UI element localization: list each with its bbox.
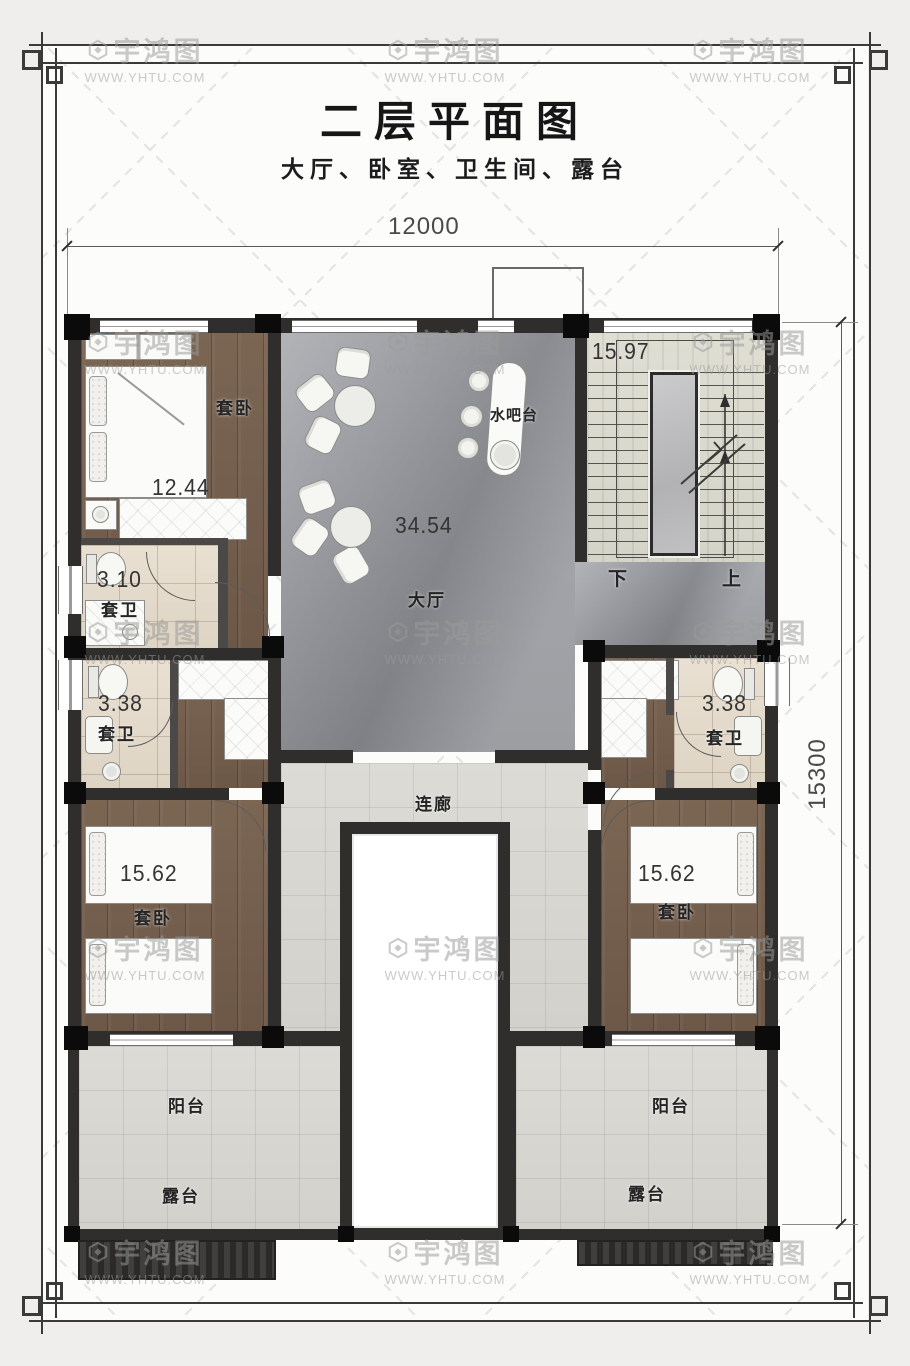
bar-stool <box>468 370 490 392</box>
area-label-suite-bedroom-tl: 12.44 <box>152 474 210 501</box>
area-label-suite-bath-left: 3.38 <box>98 690 143 717</box>
area-label-suite-bedroom-right: 15.62 <box>638 860 696 887</box>
dimension-width-label: 12000 <box>388 213 460 241</box>
wall-hall-bottom <box>495 750 595 763</box>
wall-stairs-left <box>575 332 587 562</box>
wardrobe-l-shape <box>178 660 270 700</box>
frame-line-inner <box>43 62 863 64</box>
water-bar-basin <box>490 440 520 470</box>
frame-line <box>29 44 881 46</box>
room-label-suite-bath-left: 套卫 <box>98 720 136 745</box>
shower-drain <box>730 764 749 783</box>
page-title: 二层平面图 <box>0 88 910 149</box>
room-label-water-bar: 水吧台 <box>490 404 538 425</box>
wall-partition <box>170 660 178 788</box>
balcony-sliding-door <box>110 1034 233 1046</box>
frame-corner-ornament <box>869 50 888 70</box>
wall-partition <box>666 658 674 715</box>
column <box>755 1026 780 1050</box>
column <box>262 1026 284 1048</box>
wall-right-suite-top <box>588 645 765 658</box>
wardrobe-l-shape <box>601 698 647 758</box>
room-label-suite-bedroom-left: 套卧 <box>134 904 172 929</box>
area-label-suite-bedroom-left: 15.62 <box>120 860 178 887</box>
dimension-height-label: 15300 <box>804 731 832 817</box>
window <box>58 660 83 710</box>
frame-corner-ornament <box>834 1282 851 1300</box>
wall-interior <box>588 658 601 770</box>
frame-corner-ornament <box>46 66 63 84</box>
stair-center-wall <box>650 372 698 556</box>
frame-line <box>29 1320 881 1322</box>
column <box>64 314 90 340</box>
balcony-sliding-door <box>612 1034 735 1046</box>
pillow <box>737 832 754 896</box>
column <box>64 782 86 804</box>
room-label-suite-bath-tl: 套卫 <box>101 596 139 621</box>
dimension-extension <box>782 322 858 323</box>
wall-terrace <box>341 1046 352 1240</box>
bar-stool <box>460 405 483 428</box>
area-label-stairs: 15.97 <box>592 338 650 365</box>
shower-drain <box>102 762 121 781</box>
room-label-suite-bedroom-tl: 套卧 <box>216 394 254 419</box>
frame-corner-ornament <box>22 50 41 70</box>
area-label-suite-bath-tl: 3.10 <box>97 566 142 593</box>
dresser <box>85 334 192 360</box>
wall-terrace <box>505 1229 778 1240</box>
shower-drain <box>122 624 138 640</box>
window <box>478 320 514 333</box>
bar-stool <box>457 437 479 459</box>
room-label-hall: 大厅 <box>408 586 446 611</box>
pillow <box>89 432 107 482</box>
column <box>255 314 281 333</box>
room-label-suite-bedroom-right: 套卧 <box>658 898 696 923</box>
pillow <box>89 944 106 1006</box>
floor-terrace-left <box>79 1046 341 1229</box>
wall-partition <box>81 538 228 545</box>
column <box>583 640 605 662</box>
column <box>262 782 284 804</box>
frame-line <box>41 32 43 1334</box>
awning-right <box>577 1240 773 1266</box>
column <box>64 636 86 658</box>
frame-corner-ornament <box>46 1282 63 1300</box>
window <box>58 566 83 614</box>
corridor-void-opening <box>340 822 510 1240</box>
frame-corner-ornament <box>22 1296 41 1316</box>
round-table <box>334 385 376 427</box>
dimension-extension <box>67 228 68 318</box>
wall-terrace <box>68 1229 352 1240</box>
frame-corner-ornament <box>834 66 851 84</box>
wall-partition <box>666 770 674 788</box>
lamp <box>92 506 109 523</box>
floor-plan-page: 二层平面图 大厅、卧室、卫生间、露台 12000 15300 <box>0 0 910 1366</box>
window <box>292 320 417 333</box>
frame-line-inner <box>55 48 57 1318</box>
wall-interior <box>81 648 281 660</box>
dimension-extension <box>778 228 779 318</box>
round-table <box>330 506 372 548</box>
pillow <box>89 376 107 426</box>
wardrobe-l-shape <box>224 698 270 760</box>
frame-line-inner <box>43 1302 863 1304</box>
frame-corner-ornament <box>869 1296 888 1316</box>
stairs-up-label: 上 <box>722 564 743 591</box>
column <box>503 1226 519 1242</box>
frame-line <box>869 32 871 1334</box>
window <box>604 320 752 333</box>
room-label-terrace-left: 露台 <box>162 1182 200 1207</box>
wardrobe <box>119 498 247 540</box>
window <box>764 658 790 706</box>
column <box>757 640 780 662</box>
wall-interior <box>268 318 281 576</box>
page-subtitle: 大厅、卧室、卫生间、露台 <box>0 150 910 184</box>
lounge-chair <box>334 346 372 380</box>
column <box>262 636 284 658</box>
column <box>583 782 605 804</box>
column <box>338 1226 354 1242</box>
column <box>757 782 780 804</box>
column <box>64 1026 88 1050</box>
frame-line-inner <box>853 48 855 1318</box>
wall-interior <box>655 788 765 800</box>
wall-terrace <box>505 1046 516 1240</box>
pillow <box>89 832 106 896</box>
column <box>563 314 589 338</box>
column <box>753 314 780 340</box>
window <box>100 320 208 333</box>
area-label-hall: 34.54 <box>395 512 453 539</box>
awning-left <box>78 1240 276 1280</box>
dimension-extension <box>782 1224 858 1225</box>
wall-terrace <box>767 1046 778 1240</box>
room-label-balcony-right: 阳台 <box>652 1092 690 1117</box>
wall-hall-bottom <box>281 750 353 763</box>
room-label-suite-bath-right: 套卫 <box>706 724 744 749</box>
dimension-line-right <box>841 322 842 1224</box>
dimension-line-top <box>67 246 779 247</box>
wall-interior <box>81 788 229 800</box>
pillow <box>737 944 754 1006</box>
area-label-suite-bath-right: 3.38 <box>702 690 747 717</box>
stairs-down-label: 下 <box>608 564 629 591</box>
wall-terrace <box>68 1046 79 1240</box>
room-label-terrace-right: 露台 <box>628 1180 666 1205</box>
wall-interior <box>268 640 281 1031</box>
column <box>583 1026 605 1048</box>
room-label-corridor: 连廊 <box>415 790 453 815</box>
room-label-balcony-left: 阳台 <box>168 1092 206 1117</box>
wall-interior <box>588 830 601 1031</box>
